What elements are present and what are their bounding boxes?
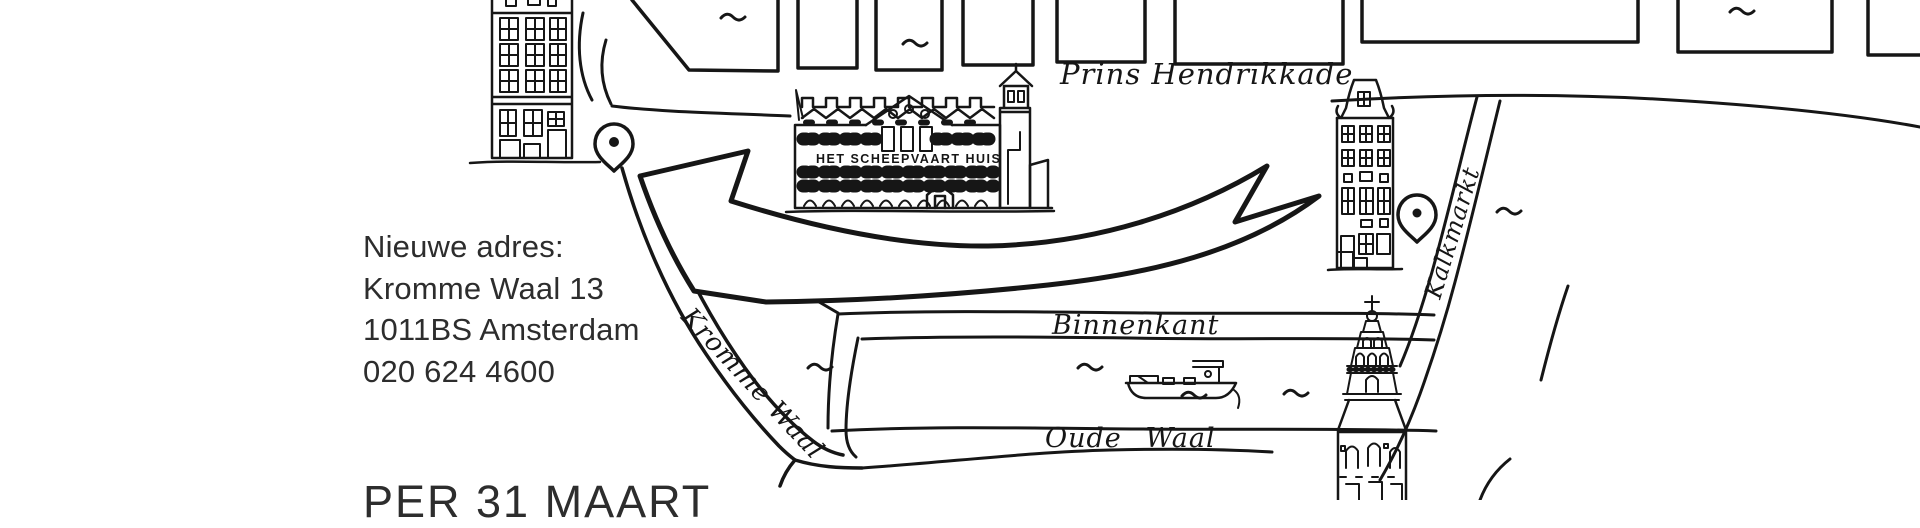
location-pin-right-icon bbox=[1398, 195, 1436, 242]
church-tower bbox=[1338, 296, 1406, 500]
street-label-kromme-waal: Kromme Waal bbox=[674, 302, 830, 466]
tilde-icon bbox=[1078, 364, 1102, 370]
moving-date-heading: PER 31 MAART bbox=[363, 476, 711, 528]
street-label-binnenkant: Binnenkant bbox=[1051, 310, 1219, 341]
tilde-icon bbox=[721, 14, 745, 20]
address-heading: Nieuwe adres: bbox=[363, 226, 640, 268]
street-label-oude-waal: Oude Waal bbox=[1045, 423, 1216, 454]
tilde-icon bbox=[808, 364, 832, 370]
tilde-icon bbox=[1497, 208, 1521, 214]
hand-drawn-map: HET SCHEEPVAART HUIS bbox=[0, 0, 1920, 500]
tilde-icon bbox=[1284, 390, 1308, 396]
moving-announcement: HET SCHEEPVAART HUIS bbox=[0, 0, 1920, 500]
address-street: Kromme Waal 13 bbox=[363, 268, 640, 310]
tilde-icon bbox=[1730, 8, 1754, 14]
address-block: Nieuwe adres: Kromme Waal 13 1011BS Amst… bbox=[363, 226, 640, 392]
building-label-scheepvaart: HET SCHEEPVAART HUIS bbox=[816, 152, 1001, 166]
canal-boat-icon bbox=[1126, 361, 1239, 408]
address-phone: 020 624 4600 bbox=[363, 351, 640, 393]
canal-house-right bbox=[1328, 80, 1402, 270]
location-pin-left-icon bbox=[595, 124, 633, 171]
address-postal-city: 1011BS Amsterdam bbox=[363, 309, 640, 351]
building-scheepvaarthuis: HET SCHEEPVAART HUIS bbox=[786, 64, 1054, 212]
street-label-prins-hendrikkade: Prins Hendrikkade bbox=[1059, 57, 1353, 91]
tilde-icon bbox=[903, 40, 927, 46]
